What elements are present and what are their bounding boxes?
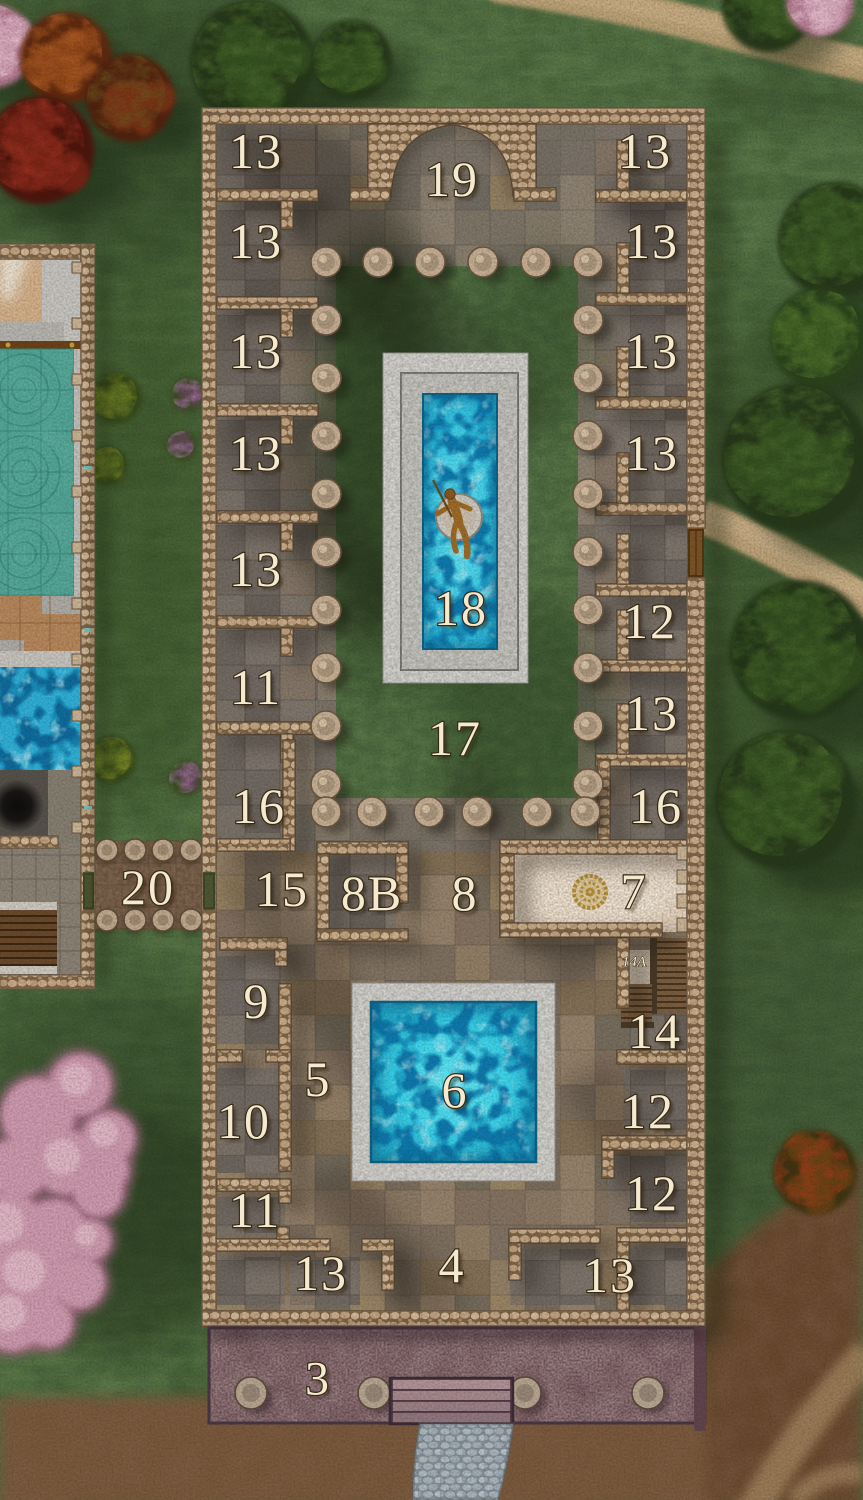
svg-text:12: 12 bbox=[623, 593, 677, 649]
svg-text:3: 3 bbox=[305, 1352, 331, 1405]
svg-text:13: 13 bbox=[229, 213, 283, 269]
svg-text:12: 12 bbox=[621, 1083, 675, 1139]
svg-text:13: 13 bbox=[229, 425, 283, 481]
svg-text:13: 13 bbox=[229, 323, 283, 379]
svg-text:13: 13 bbox=[625, 213, 679, 269]
svg-text:12: 12 bbox=[625, 1165, 679, 1221]
svg-text:13: 13 bbox=[229, 123, 283, 179]
svg-text:17: 17 bbox=[428, 710, 482, 766]
svg-text:18: 18 bbox=[434, 580, 488, 636]
svg-text:16: 16 bbox=[629, 778, 683, 834]
svg-text:11: 11 bbox=[230, 659, 282, 715]
svg-text:13: 13 bbox=[625, 685, 679, 741]
svg-text:14: 14 bbox=[628, 1003, 682, 1059]
svg-text:9: 9 bbox=[244, 973, 271, 1029]
svg-text:13: 13 bbox=[229, 541, 283, 597]
svg-text:5: 5 bbox=[305, 1051, 332, 1107]
svg-text:20: 20 bbox=[121, 859, 175, 915]
svg-text:14A: 14A bbox=[622, 954, 647, 970]
svg-text:7: 7 bbox=[621, 863, 648, 919]
svg-text:11: 11 bbox=[229, 1182, 281, 1238]
svg-text:8: 8 bbox=[452, 865, 479, 921]
svg-text:15: 15 bbox=[255, 861, 309, 917]
svg-text:4: 4 bbox=[439, 1237, 466, 1293]
svg-text:10: 10 bbox=[217, 1093, 271, 1149]
svg-text:13: 13 bbox=[294, 1245, 348, 1301]
svg-text:16: 16 bbox=[232, 778, 286, 834]
svg-text:13: 13 bbox=[625, 323, 679, 379]
svg-text:19: 19 bbox=[425, 151, 479, 207]
svg-text:13: 13 bbox=[625, 425, 679, 481]
svg-text:6: 6 bbox=[442, 1062, 469, 1118]
svg-text:13: 13 bbox=[618, 123, 672, 179]
svg-text:13: 13 bbox=[583, 1247, 637, 1303]
svg-text:8B: 8B bbox=[341, 865, 403, 921]
